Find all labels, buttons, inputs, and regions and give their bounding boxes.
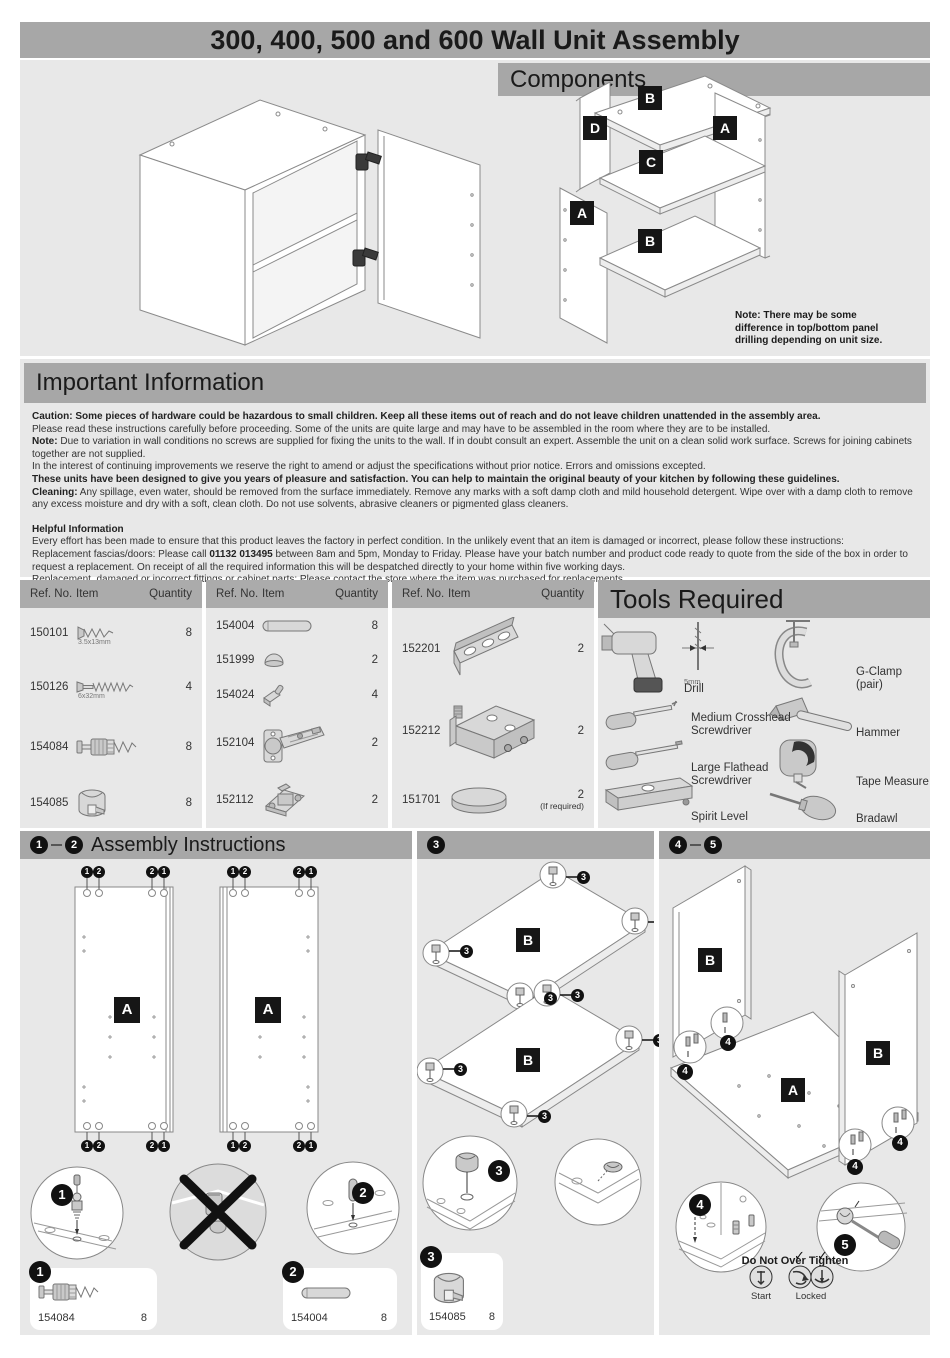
assembly-col-3: 4 5 [659,831,930,1335]
card-1-badge: 1 [29,1261,51,1283]
callout-1: 1 [227,1140,239,1152]
guidelines-paragraph: These units have been designed to give y… [32,474,918,487]
tools-title: Tools Required [610,584,783,615]
dowel-icon [262,619,312,633]
callout-2: 2 [239,866,251,878]
cam-locked-label: Locked [787,1291,835,1302]
hammer-label: Hammer [856,727,900,740]
parts-table-2-header: Ref. No. Item Quantity [206,580,388,608]
part-row-154004: 154004 8 [206,608,388,644]
parts-table-3-header: Ref. No. Item Quantity [392,580,594,608]
assembled-cabinet-drawing [140,100,480,345]
detail-2-badge: 2 [352,1182,374,1204]
panel-a-label-base: A [781,1078,805,1102]
check-icon: ✓ [817,1248,828,1264]
drill-bit-icon [682,622,714,670]
part-row-152104: 152104 2 [206,714,388,772]
cleaning-paragraph: Cleaning: Any spillage, even water, shou… [32,487,918,512]
part-row-154024: 154024 4 [206,676,388,714]
gclamp-label: G-Clamp (pair) [856,666,918,692]
detail-5-badge: 5 [834,1234,856,1256]
component-label-a-left: A [570,201,594,225]
cam-lock-icon [431,1269,469,1307]
parts-table-2: Ref. No. Item Quantity 154004 8 151999 [206,580,388,828]
callout-4: 4 [892,1135,908,1151]
card-2-badge: 2 [282,1261,304,1283]
callout-2: 2 [93,866,105,878]
panel-a-label-right: A [255,997,281,1023]
tools-section: Tools Required [598,580,930,828]
part-row-150101: 150101 3.5x13mm 8 [20,608,202,658]
detail-step3-insert [423,1136,517,1230]
callout-2: 2 [293,866,305,878]
part-row-151999: 151999 2 [206,644,388,676]
component-label-a-right: A [713,116,737,140]
callout-2: 2 [146,866,158,878]
drill-icon [602,624,662,692]
panel-b-label-left: B [698,948,722,972]
cam-lock-icon [76,787,110,819]
panel-b-label-bottom: B [516,1048,540,1072]
callout-2: 2 [239,1140,251,1152]
check-icon: ✓ [794,1248,805,1264]
components-section: Components [20,60,930,356]
read-instructions-paragraph: Please read these instructions carefully… [32,424,918,437]
helpful-info-title: Helpful Information [32,524,918,537]
wall-note-paragraph: Note: Due to variation in wall condition… [32,436,918,461]
component-label-b-top: B [638,86,662,110]
cam-bolt-icon [76,737,138,757]
crosshead-label: Medium Crosshead Screwdriver [691,712,801,738]
part-row-154084: 154084 8 [20,716,202,778]
callout-1: 1 [158,1140,170,1152]
component-label-d: D [583,116,607,140]
callout-1: 1 [305,1140,317,1152]
panel-b-label-right: B [866,1041,890,1065]
qty-value: 2 [540,789,584,801]
step-1-2-drawing [20,831,412,1335]
callout-4: 4 [847,1159,863,1175]
callout-1: 1 [158,866,170,878]
cam-start-label: Start [741,1291,781,1302]
detail-4-badge: 4 [689,1194,711,1216]
cam-bolt-icon [38,1282,100,1302]
card-ref: 154085 [429,1311,466,1323]
tape-label: Tape Measure [856,776,929,789]
tools-header-bar: Tools Required [598,580,930,618]
detail-step3-seated [555,1139,641,1225]
parts-table-3: Ref. No. Item Quantity 152201 2 152212 [392,580,594,828]
bradawl-label: Bradawl [856,813,898,826]
callout-3: 3 [454,1063,467,1076]
callout-3: 3 [544,992,557,1005]
callout-4: 4 [677,1064,693,1080]
callout-2: 2 [293,1140,305,1152]
part-row-152212: 152212 2 [392,690,594,772]
drilling-note: Note: There may be some difference in to… [735,310,903,348]
helpful-intro-paragraph: Every effort has been made to ensure tha… [32,536,918,549]
important-info-header-bar: Important Information [24,363,926,403]
important-info-title: Important Information [36,369,264,397]
parts-table-1: Ref. No. Item Quantity 150101 3.5x13mm 8… [20,580,202,828]
improvements-paragraph: In the interest of continuing improvemen… [32,461,918,474]
bradawl-icon [770,792,838,823]
callout-1: 1 [81,1140,93,1152]
wall-bracket-icon [448,698,540,764]
flathead-screwdriver-icon [605,741,682,771]
qty-note: (If required) [540,801,584,811]
wall-plate-icon [448,617,526,681]
parts-table-1-header: Ref. No. Item Quantity [20,580,202,608]
assembly-col-2: 3 [417,831,654,1335]
callout-2: 2 [93,1140,105,1152]
cam-state-icons [750,1266,833,1288]
col-item: Item [76,588,149,600]
page-title-bar: 300, 400, 500 and 600 Wall Unit Assembly [20,22,930,58]
spirit-level-icon [606,778,692,810]
flathead-label: Large Flathead Screwdriver [691,762,791,788]
instruction-sheet: 300, 400, 500 and 600 Wall Unit Assembly… [0,0,950,1358]
callout-2: 2 [146,1140,158,1152]
detail-3-badge: 3 [488,1160,510,1182]
part-row-152112: 152112 2 [206,772,388,828]
spirit-label: Spirit Level [691,811,748,824]
component-label-c: C [639,150,663,174]
callout-3: 3 [538,1110,551,1123]
drill-label: Drill [684,683,704,696]
part-row-154085: 154085 8 [20,778,202,828]
part-row-151701: 151701 2 (If required) [392,772,594,828]
hinge-plate-icon [262,782,308,818]
page-title: 300, 400, 500 and 600 Wall Unit Assembly [210,25,739,56]
card-3-badge: 3 [420,1246,442,1268]
detail-step1 [31,1167,123,1259]
callout-3: 3 [577,871,590,884]
callout-3: 3 [460,945,473,958]
shelf-support-icon [262,682,292,708]
important-info-section: Important Information Caution: Some piec… [20,359,930,577]
assembly-col-1: 1 2 Assembly Instructions [20,831,412,1335]
callout-3: 3 [571,989,584,1002]
col-qty: Quantity [149,588,192,600]
card-qty: 8 [381,1312,387,1324]
card-qty: 8 [141,1312,147,1324]
detail-step2 [307,1162,399,1254]
important-info-text: Caution: Some pieces of hardware could b… [32,411,918,587]
panel-b-label-top: B [516,928,540,952]
callout-1: 1 [305,866,317,878]
crosshead-screwdriver-icon [605,701,677,730]
panel-a-label-left: A [114,997,140,1023]
card-ref: 154084 [38,1312,75,1324]
part-row-152201: 152201 2 [392,608,594,690]
callout-4: 4 [720,1035,736,1051]
component-label-b-bottom: B [638,229,662,253]
card-qty: 8 [489,1311,495,1323]
replacement-paragraph: Replacement fascias/doors: Please call 0… [32,549,918,574]
hinge-icon [262,722,326,764]
cover-disc-icon [448,785,510,815]
g-clamp-icon [779,620,810,684]
detail-1-badge: 1 [51,1184,73,1206]
callout-1: 1 [227,866,239,878]
dowel-icon [301,1286,351,1300]
part-row-150126: 150126 6x32mm 4 [20,658,202,716]
callout-1: 1 [81,866,93,878]
col-ref: Ref. No. [30,588,76,600]
caution-paragraph: Caution: Some pieces of hardware could b… [32,411,918,424]
cover-cap-icon [262,651,286,669]
card-ref: 154004 [291,1312,328,1324]
